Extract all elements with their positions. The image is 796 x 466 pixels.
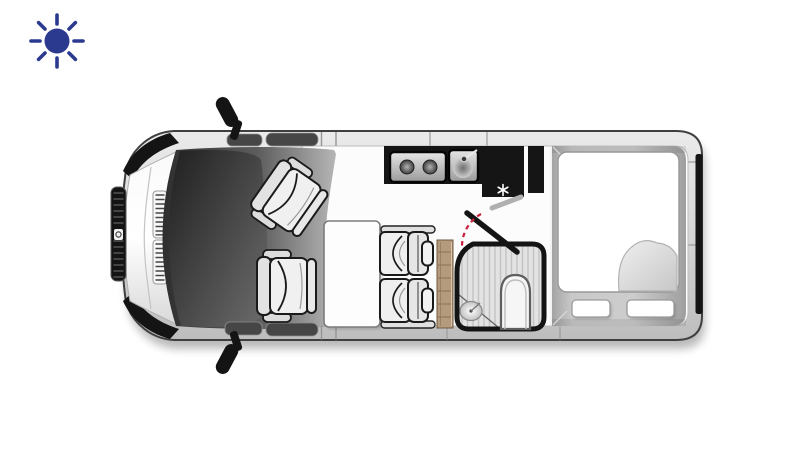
front-grille [111,187,126,281]
page [0,0,796,466]
floorplan-canvas [0,0,796,466]
burner-left [400,160,414,174]
rear-door-trim [696,154,703,314]
bed-cushion-left [572,300,610,317]
window-top-right [266,133,318,146]
corner-washbasin [460,302,482,321]
van-floorplan [111,95,705,377]
window-bottom-right [266,323,318,336]
sun-icon [31,15,83,67]
toilet [501,275,530,329]
bed-cushion-right [627,300,674,317]
driver-seat [257,250,316,322]
sun-disc [45,29,70,54]
bench-seat-1 [380,232,433,275]
dinette-table [324,221,383,330]
tall-cabinet [528,146,544,193]
bench-seat-2 [380,279,433,322]
wardrobe-unit [437,240,453,328]
headrest [422,289,433,313]
windshield [169,150,267,327]
burner-right [423,160,437,174]
headrest [422,242,433,266]
two-burner-hob [390,152,446,182]
kitchen-sink [449,150,478,182]
